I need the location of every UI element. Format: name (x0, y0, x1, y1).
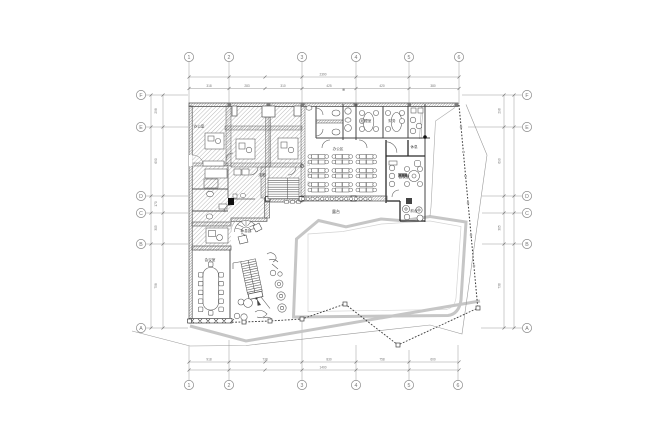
svg-text:1: 1 (188, 55, 191, 61)
svg-text:758: 758 (154, 283, 158, 289)
svg-text:走廊: 走廊 (258, 172, 266, 177)
svg-text:6: 6 (458, 55, 461, 61)
svg-text:露台: 露台 (332, 208, 340, 214)
svg-text:E: E (139, 125, 143, 131)
svg-text:4: 4 (355, 383, 358, 389)
svg-text:2: 2 (228, 383, 231, 389)
svg-text:3: 3 (301, 383, 304, 389)
svg-text:600: 600 (430, 358, 436, 362)
svg-text:休息区: 休息区 (241, 228, 252, 233)
svg-text:918: 918 (206, 358, 212, 362)
svg-text:C: C (139, 211, 143, 217)
svg-text:305: 305 (498, 225, 502, 231)
svg-text:B: B (139, 242, 143, 248)
svg-text:休息: 休息 (410, 144, 418, 149)
svg-text:D: D (525, 194, 529, 200)
svg-text:经理室: 经理室 (361, 118, 372, 123)
svg-text:会议室: 会议室 (205, 257, 216, 262)
svg-text:298: 298 (154, 108, 158, 114)
svg-text:A: A (139, 326, 143, 332)
svg-text:120: 120 (307, 161, 311, 166)
svg-text:2390: 2390 (319, 73, 326, 77)
svg-text:办公室: 办公室 (194, 124, 205, 129)
svg-text:会议室: 会议室 (399, 174, 410, 179)
svg-text:380: 380 (430, 84, 436, 88)
svg-text:210: 210 (307, 181, 311, 186)
svg-text:318: 318 (206, 84, 212, 88)
svg-text:690: 690 (498, 158, 502, 164)
svg-text:2: 2 (228, 55, 231, 61)
svg-text:C: C (525, 211, 529, 217)
svg-text:6: 6 (457, 383, 460, 389)
svg-text:办公区: 办公区 (333, 146, 344, 151)
svg-text:1400: 1400 (319, 366, 326, 370)
svg-text:305: 305 (154, 225, 158, 231)
svg-text:420: 420 (379, 84, 385, 88)
svg-text:D: D (139, 194, 143, 200)
svg-text:A: A (525, 326, 529, 332)
svg-text:738: 738 (262, 358, 268, 362)
svg-text:310: 310 (280, 84, 286, 88)
svg-text:4: 4 (355, 55, 358, 61)
svg-text:738: 738 (498, 283, 502, 289)
svg-text:758: 758 (379, 358, 385, 362)
svg-text:830: 830 (326, 358, 332, 362)
svg-text:E: E (525, 125, 529, 131)
svg-text:3: 3 (301, 55, 304, 61)
svg-text:F: F (525, 93, 528, 99)
svg-text:财务: 财务 (388, 118, 396, 123)
svg-text:170: 170 (154, 201, 158, 207)
svg-text:5: 5 (408, 55, 411, 61)
svg-text:B: B (525, 242, 529, 248)
svg-text:690: 690 (154, 158, 158, 164)
svg-text:450: 450 (307, 171, 311, 176)
svg-text:1: 1 (188, 383, 191, 389)
svg-text:F: F (139, 93, 142, 99)
svg-text:425: 425 (326, 84, 332, 88)
svg-text:298: 298 (498, 108, 502, 114)
svg-text:283: 283 (244, 84, 250, 88)
svg-text:前台: 前台 (410, 208, 418, 213)
svg-text:5: 5 (408, 383, 411, 389)
